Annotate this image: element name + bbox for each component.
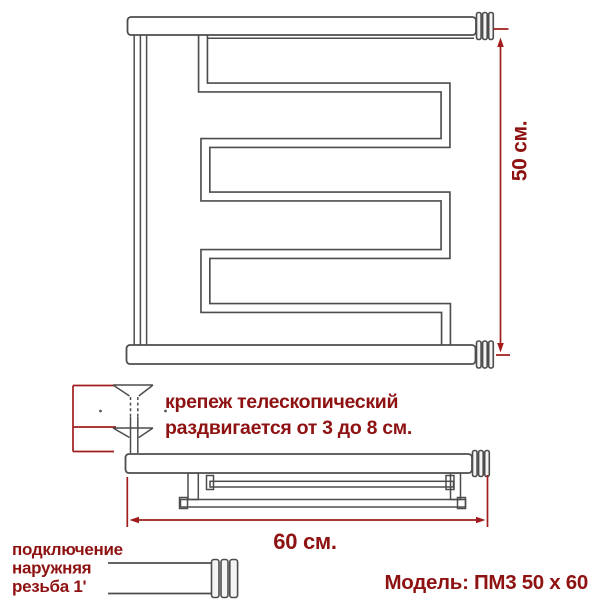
mount-side-dot-left xyxy=(99,410,102,413)
bracket-leg-left xyxy=(188,473,198,500)
mount-telescopic-stem-dashed xyxy=(131,397,138,417)
side-view-thread-fitting-icon xyxy=(473,451,490,477)
connection-note-line2: наружняя xyxy=(12,559,91,578)
top-thread-fitting-icon xyxy=(477,13,494,40)
connection-thread-icon xyxy=(212,560,238,598)
mount-note-line2: раздвигается от 3 до 8 см. xyxy=(165,417,412,439)
height-dimension-label: 50 см. xyxy=(509,121,532,181)
left-riser-pipes xyxy=(134,30,146,349)
top-bar xyxy=(128,17,477,35)
wall-rail xyxy=(181,500,466,508)
side-view-drawing: 60 см. xyxy=(126,451,490,555)
connection-note-line3: резьба 1' xyxy=(12,577,86,596)
side-view-bar xyxy=(126,454,473,473)
rear-tube xyxy=(210,481,454,487)
mount-stem-solid xyxy=(131,417,138,453)
mount-wall-plate-top xyxy=(113,385,153,396)
mount-wall-plate-extended xyxy=(113,428,153,438)
bottom-thread-fitting-icon xyxy=(477,341,494,368)
bottom-bar xyxy=(127,345,476,364)
front-view-drawing: 50 см. xyxy=(127,13,532,369)
height-dimension-line xyxy=(494,29,511,355)
model-label: Модель: ПМ3 50 х 60 xyxy=(385,571,589,594)
mount-note-line1: крепеж телескопический xyxy=(165,391,398,413)
mount-range-bracket xyxy=(73,386,116,452)
connection-note-line1: подключение xyxy=(12,540,123,559)
towel-rail-diagram: 50 см. крепеж телескопический раздвигает… xyxy=(0,0,600,600)
serpentine-pipe xyxy=(203,31,446,349)
connection-pipe-detail xyxy=(108,560,238,598)
width-dimension-line xyxy=(127,475,487,527)
width-dimension-label: 60 см. xyxy=(273,529,336,554)
diagram-canvas: 50 см. крепеж телескопический раздвигает… xyxy=(0,0,600,600)
mount-bracket-detail xyxy=(73,385,167,453)
